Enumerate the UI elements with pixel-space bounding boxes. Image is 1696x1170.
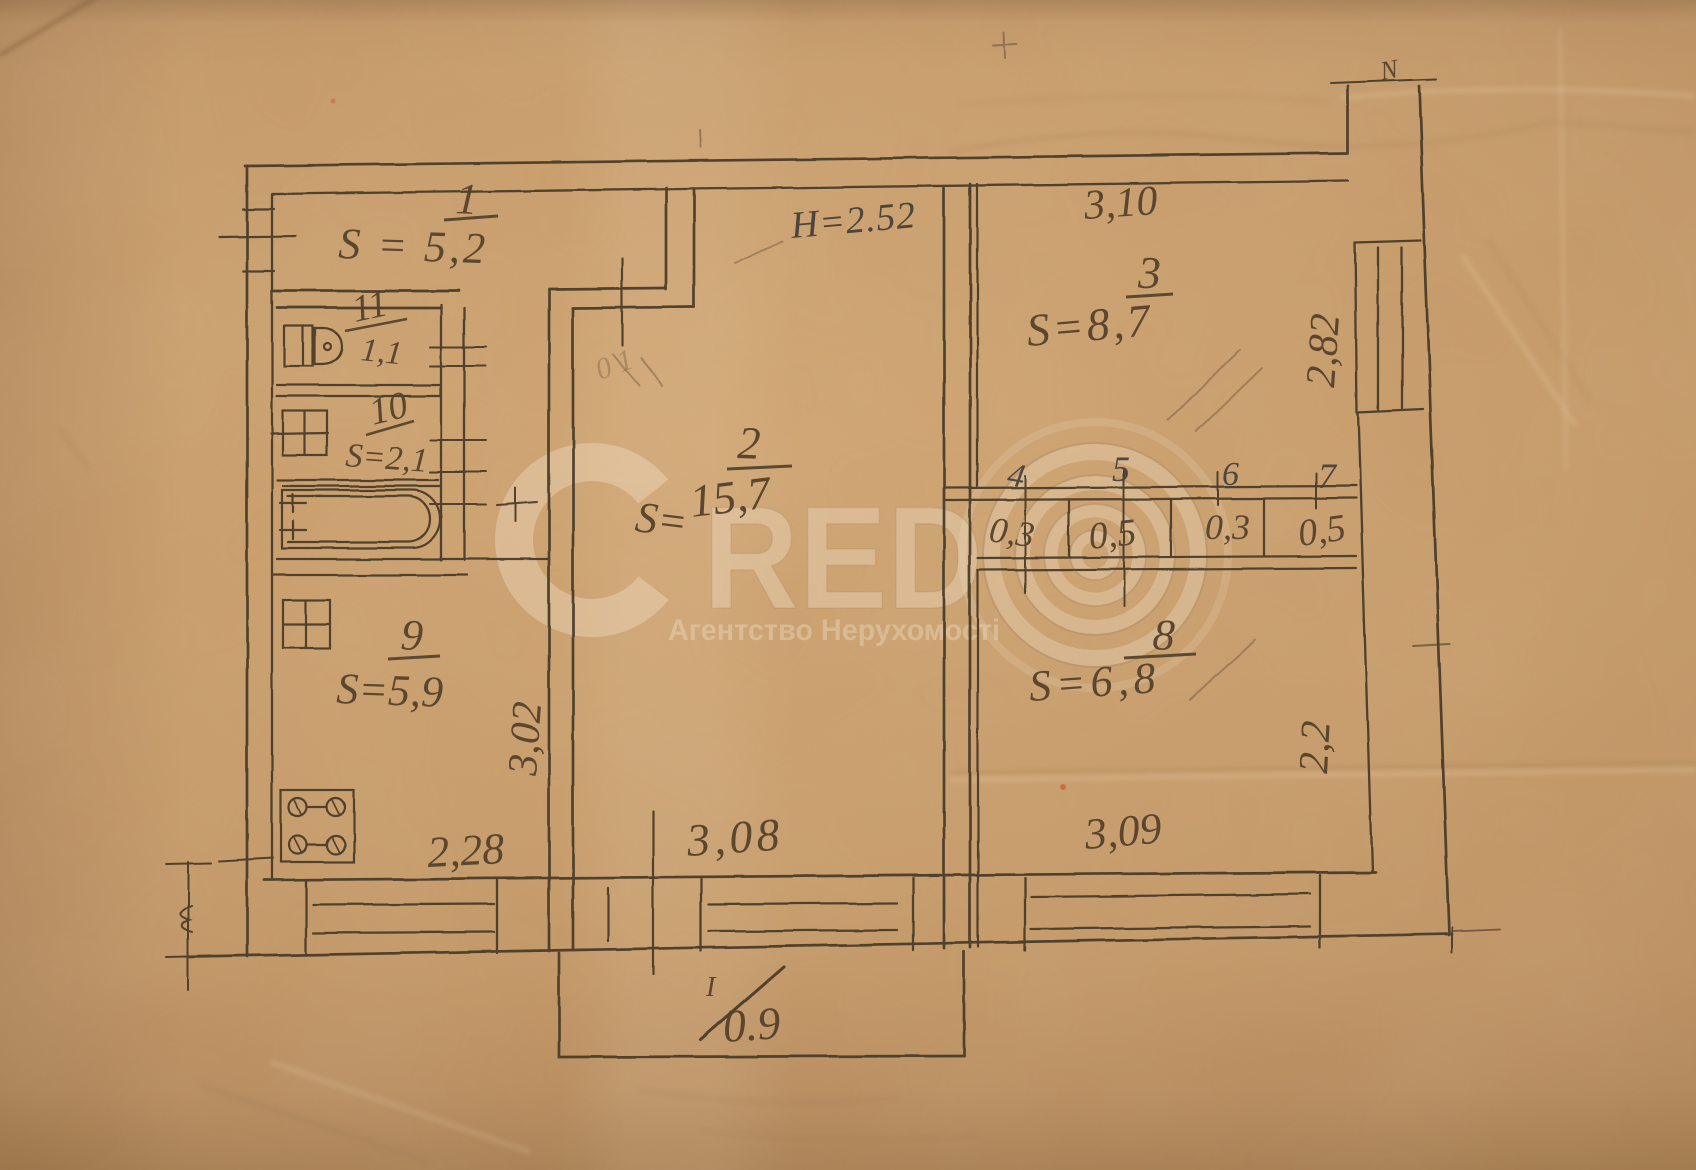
svg-text:6: 6: [1222, 456, 1239, 493]
svg-text:S=: S=: [633, 492, 690, 547]
svg-text:0,5: 0,5: [1087, 511, 1139, 558]
svg-text:15,7: 15,7: [687, 466, 775, 527]
svg-text:S=5,9: S=5,9: [336, 664, 444, 717]
svg-text:S=2,1: S=2,1: [344, 437, 429, 480]
svg-text:3,02: 3,02: [500, 700, 551, 778]
svg-text:3,09: 3,09: [1082, 803, 1164, 859]
svg-text:9: 9: [399, 610, 424, 660]
svg-text:S=6,8: S=6,8: [1027, 653, 1162, 711]
svg-text:2,2: 2,2: [1291, 720, 1340, 775]
svg-text:3,08: 3,08: [684, 808, 785, 866]
svg-text:0,5: 0,5: [1295, 507, 1348, 555]
svg-text:I: I: [705, 972, 717, 1003]
svg-text:S = 5,2: S = 5,2: [338, 219, 489, 273]
svg-text:0,3: 0,3: [987, 509, 1037, 555]
svg-text:0,3: 0,3: [1205, 507, 1250, 547]
svg-text:3: 3: [1137, 247, 1161, 298]
svg-text:2: 2: [737, 417, 762, 469]
svg-text:1,1: 1,1: [359, 332, 404, 372]
svg-text:5: 5: [1112, 449, 1130, 489]
svg-text:7: 7: [1318, 456, 1338, 496]
svg-text:3,10: 3,10: [1081, 178, 1159, 229]
svg-text:2,82: 2,82: [1298, 312, 1349, 389]
svg-text:Агентство Нерухомості: Агентство Нерухомості: [668, 614, 1000, 647]
svg-text:0.9: 0.9: [721, 997, 782, 1052]
svg-text:2,28: 2,28: [426, 824, 505, 877]
